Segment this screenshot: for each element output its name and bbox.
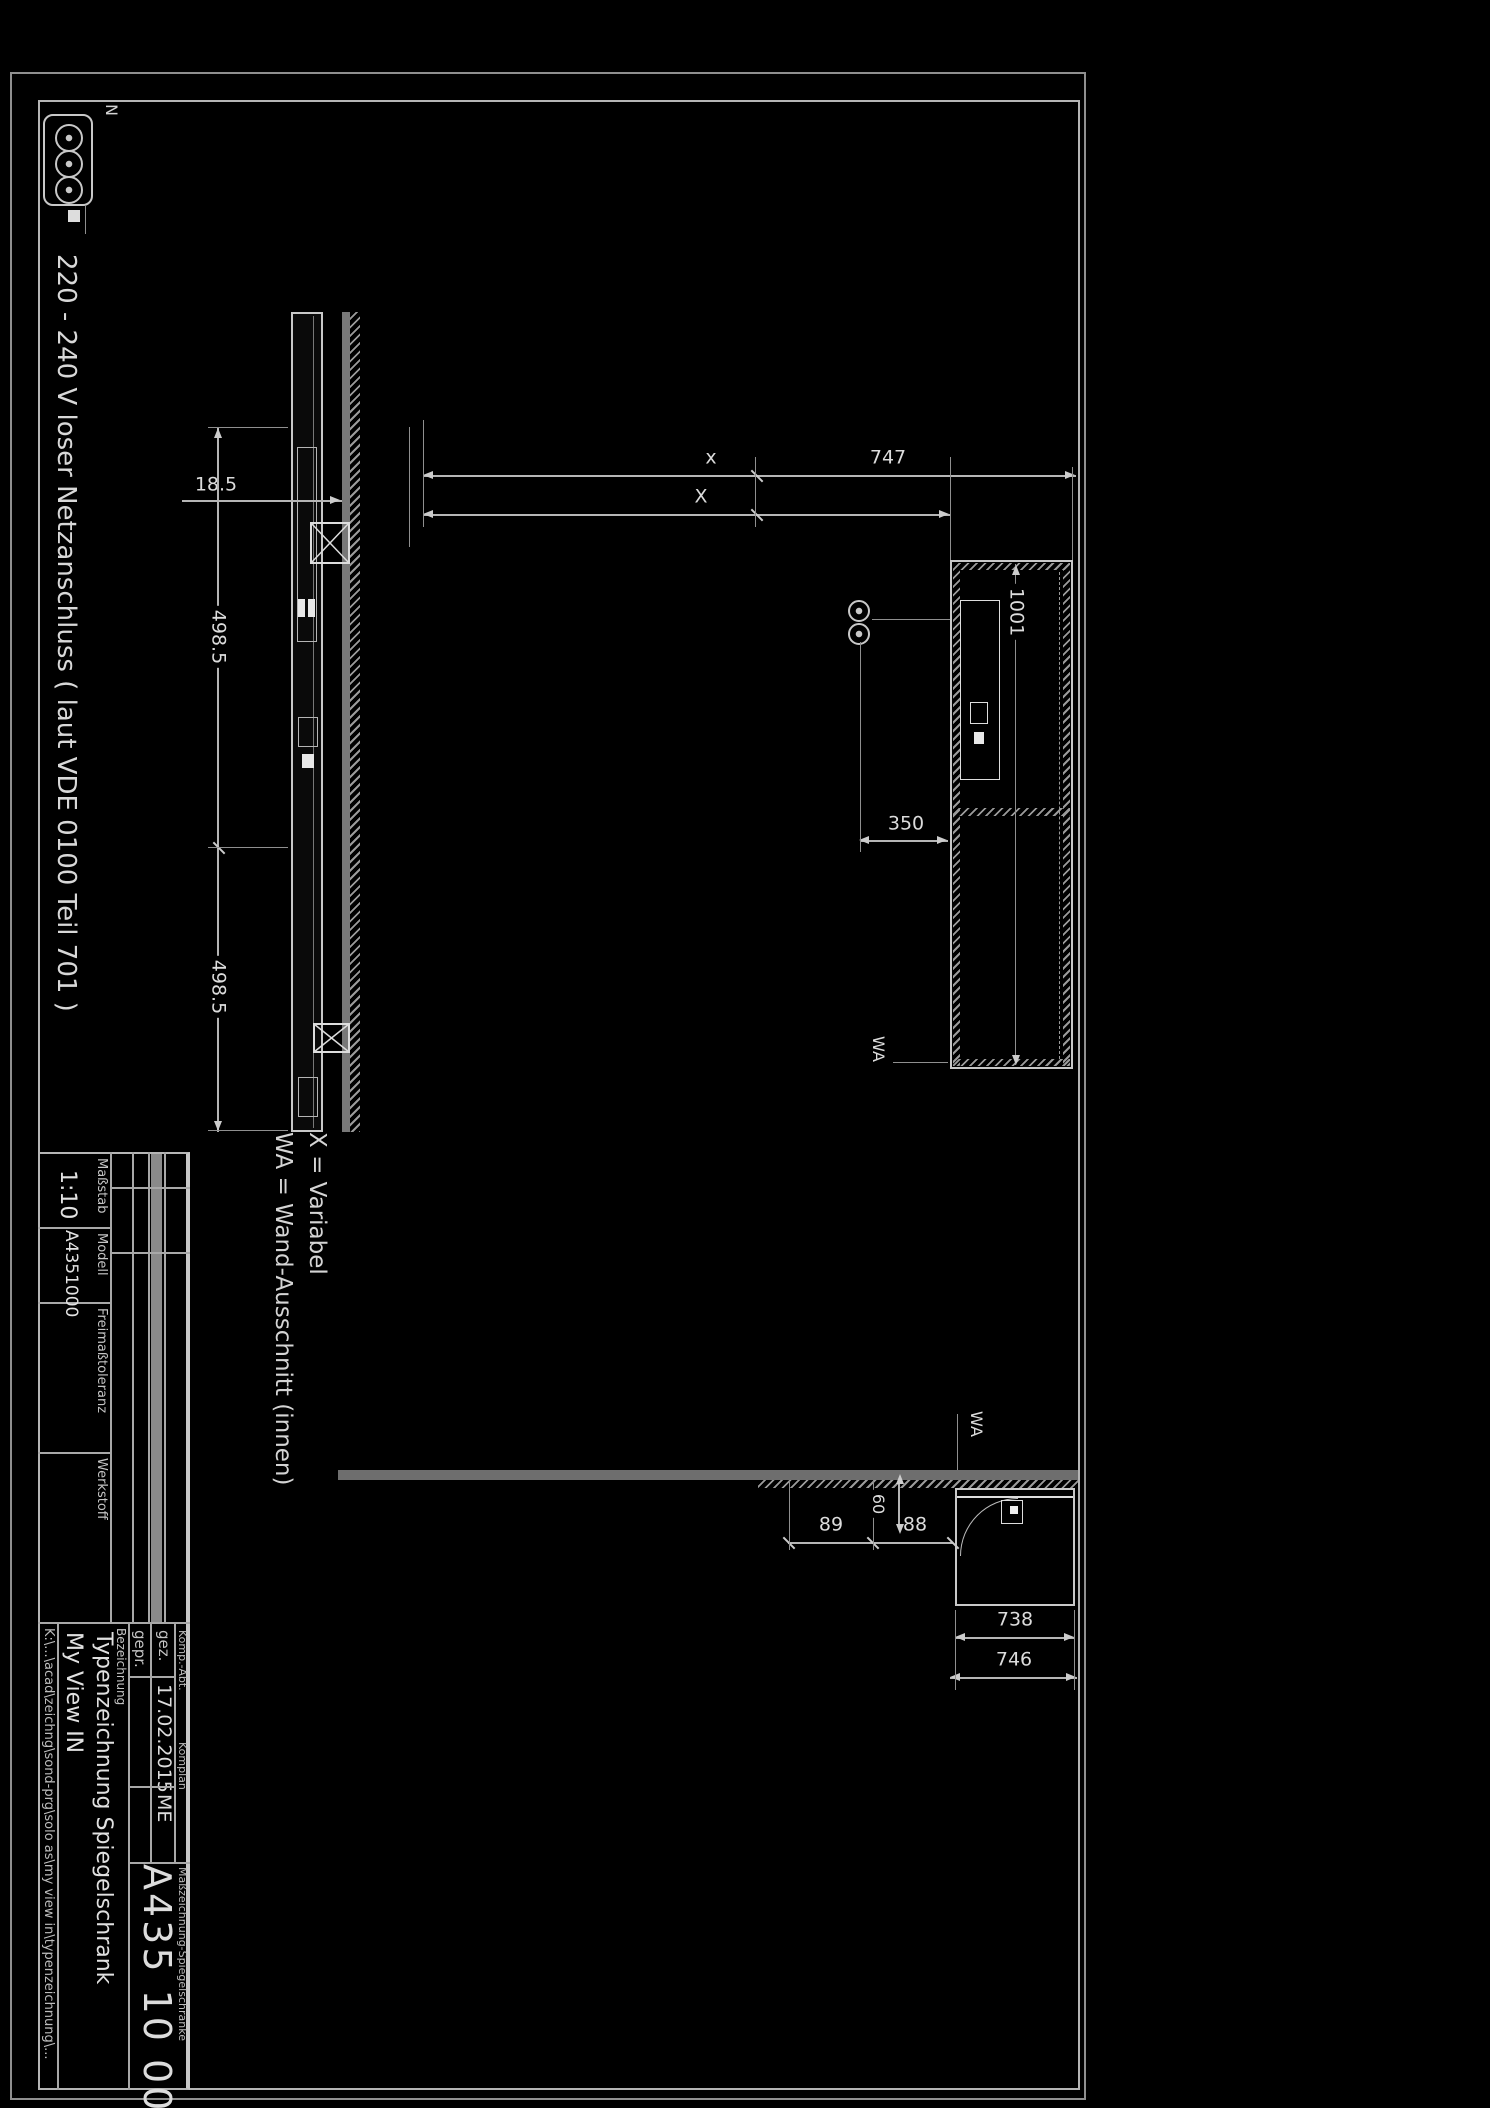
dim-line-door-depth	[182, 500, 342, 502]
dim-arrow	[423, 471, 433, 479]
dim-arrow	[1065, 471, 1075, 479]
leader-line	[872, 619, 950, 620]
scale-value: 1:10	[55, 1170, 80, 1219]
title-block-rule	[129, 1622, 131, 2090]
niche-divider	[953, 808, 1070, 816]
dim-arrow	[1064, 1633, 1074, 1641]
title-block-rule	[111, 1152, 113, 1622]
dim-label-total-x: x	[701, 449, 720, 468]
dim-label-747: 747	[866, 449, 910, 468]
designation-line2: My View IN	[61, 1632, 86, 1753]
extension-line	[409, 427, 410, 547]
socket-icon	[848, 623, 870, 645]
legend-line-2: WA = Wand-Ausschnitt (innen)	[270, 1132, 296, 1485]
title-block-divider	[38, 1622, 190, 1624]
extension-line	[955, 1610, 956, 1690]
dim-line-offset	[423, 514, 950, 516]
drawing-number: A435 10 00	[134, 1864, 178, 2090]
title-block-rule	[38, 1452, 112, 1454]
title-block-rule	[38, 1227, 112, 1229]
dept-value: Komplan	[175, 1742, 188, 1790]
title-block-rule	[112, 1187, 190, 1189]
dim-arrow	[1012, 1055, 1020, 1065]
dim-label-offset-X: X	[690, 488, 711, 507]
leader-line	[957, 1414, 958, 1470]
checked-label: gepr.	[131, 1630, 148, 1668]
hinge-detail	[1010, 1506, 1018, 1514]
extension-line	[860, 642, 861, 852]
dim-label-350: 350	[884, 815, 928, 834]
wall-hatching	[350, 312, 360, 1132]
dim-line-total	[423, 475, 1076, 477]
title-block-rule	[149, 1152, 151, 1622]
dim-label-wa-front: WA	[870, 1032, 886, 1066]
side-wall-line	[338, 1470, 1078, 1480]
dim-label-door-depth: 18.5	[191, 476, 241, 495]
title-block-rule	[151, 1622, 153, 1862]
connector-terminal-icon	[55, 150, 83, 178]
title-block-rule	[165, 1152, 167, 1622]
file-path: K:\...\acad\zeichng\sond-prg\solo as\my …	[40, 1628, 55, 2060]
lock-detail	[974, 732, 984, 744]
dim-label-89: 89	[815, 1516, 847, 1535]
dim-line-door-widths	[217, 427, 219, 1132]
title-block-rule	[133, 1152, 135, 1622]
page: N 220 - 240 V loser Netzanschluss ( laut…	[0, 0, 1490, 2108]
extension-line	[423, 420, 424, 527]
title-block-rule	[130, 1786, 176, 1788]
model-value: A4351000	[60, 1230, 80, 1317]
dim-line-350	[860, 840, 948, 842]
extension-line	[208, 427, 288, 428]
neutral-label: N	[102, 104, 120, 116]
lock-detail	[970, 702, 988, 724]
connector-terminal-icon	[55, 176, 83, 204]
drawn-label: gez.	[155, 1630, 172, 1661]
power-connection-symbol	[310, 522, 350, 564]
hinge-detail	[308, 599, 315, 617]
wall-line	[342, 312, 350, 1132]
dim-label-door-width-right: 498.5	[209, 956, 228, 1018]
dim-tick	[213, 842, 226, 855]
extension-line	[1072, 467, 1073, 560]
dim-arrow	[939, 510, 949, 518]
hinge-detail	[298, 599, 305, 617]
mains-note: 220 - 240 V loser Netzanschluss ( laut V…	[50, 254, 80, 1012]
dim-arrow	[896, 1524, 904, 1534]
component-detail	[302, 754, 314, 768]
model-label: Modell	[93, 1233, 108, 1276]
dim-arrow	[1012, 565, 1020, 575]
extension-line	[789, 1480, 790, 1550]
extension-line	[950, 457, 951, 560]
dim-label-738: 738	[993, 1611, 1037, 1630]
leader-line	[893, 1062, 948, 1063]
dim-arrow	[423, 510, 433, 518]
dept-label: Komp.-Abt.	[175, 1630, 188, 1691]
legend-line-1: X = Variabel	[304, 1132, 330, 1275]
component-detail	[298, 1077, 318, 1117]
power-connection-symbol	[313, 1023, 350, 1053]
dim-label-door-width-left: 498.5	[209, 606, 228, 668]
extension-line	[208, 1130, 288, 1131]
title-block-rule	[112, 1252, 190, 1254]
dim-line-60	[898, 1484, 900, 1524]
dim-line-738	[955, 1637, 1075, 1639]
dim-arrow	[896, 1474, 904, 1484]
revision-row-filled	[151, 1154, 162, 1622]
scale-label: Maßstab	[93, 1158, 108, 1213]
dim-label-746: 746	[992, 1651, 1036, 1670]
designation-line1: Typenzeichnung Spiegelschrank	[91, 1632, 116, 1984]
extension-line	[755, 457, 756, 527]
tolerance-label: Freimaßtoleranz	[93, 1308, 108, 1413]
dim-line-746	[950, 1677, 1077, 1679]
connector-terminal-icon	[55, 124, 83, 152]
technical-drawing-sheet: N 220 - 240 V loser Netzanschluss ( laut…	[38, 100, 1080, 2090]
component-detail	[298, 717, 318, 747]
material-label: Werkstoff	[93, 1458, 108, 1520]
door-panel-detail	[960, 600, 1000, 780]
side-wall-hatching	[758, 1480, 1078, 1488]
extension-line	[1074, 1610, 1075, 1690]
drawn-date: 17.02.2015	[152, 1684, 174, 1793]
plug-symbol	[85, 206, 86, 234]
dim-label-wa-side: WA	[968, 1407, 984, 1441]
title-block-rule	[130, 1676, 176, 1678]
drawn-by: ME	[152, 1794, 174, 1822]
dim-label-60: 60	[870, 1490, 886, 1518]
title-block-rule	[58, 1622, 60, 2090]
dim-arrow	[955, 1633, 965, 1641]
plug-symbol	[68, 210, 80, 222]
extension-line	[208, 847, 288, 848]
dim-arrow	[330, 496, 340, 504]
socket-icon	[848, 600, 870, 622]
dim-arrow	[214, 428, 222, 438]
dim-label-1001: 1001	[1007, 584, 1026, 640]
dim-arrow	[937, 836, 947, 844]
